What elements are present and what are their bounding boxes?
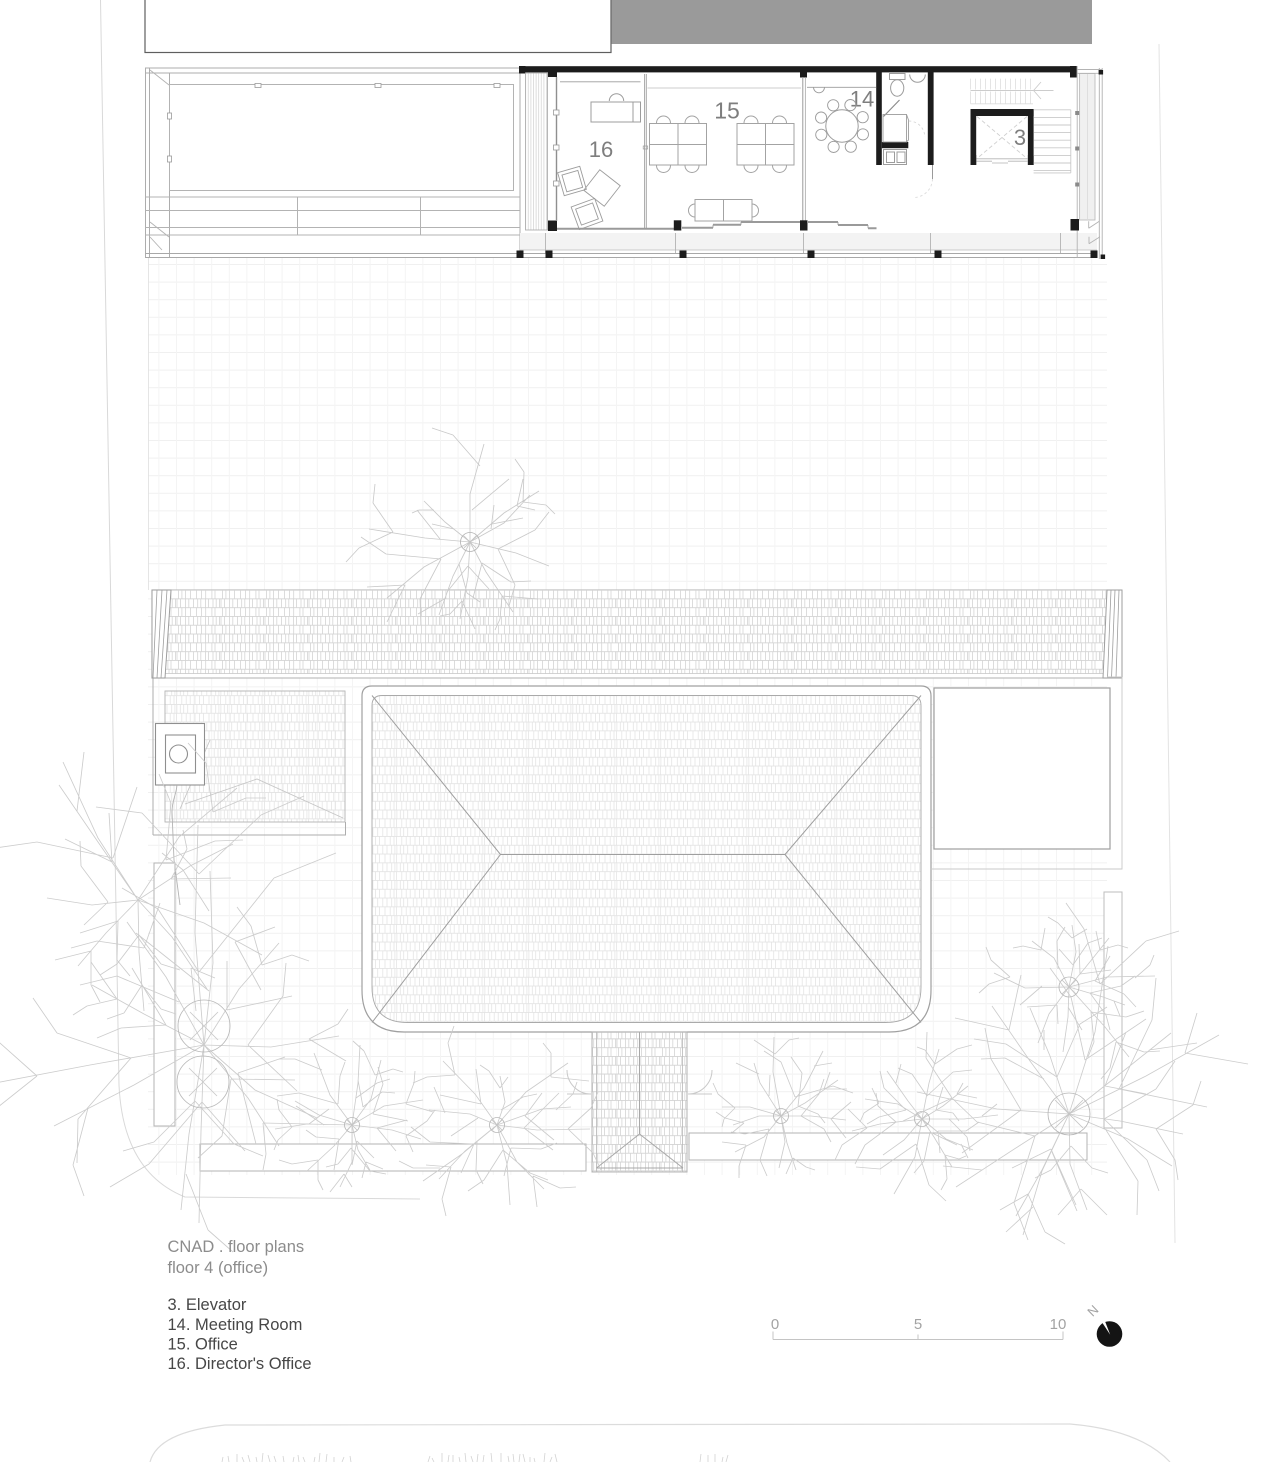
- svg-text:10: 10: [1050, 1316, 1067, 1333]
- svg-text:3. Elevator: 3. Elevator: [168, 1296, 247, 1314]
- svg-text:14. Meeting Room: 14. Meeting Room: [168, 1316, 303, 1334]
- svg-text:CNAD . floor plans: CNAD . floor plans: [168, 1238, 305, 1256]
- svg-text:0: 0: [771, 1316, 779, 1333]
- svg-text:16: 16: [589, 137, 613, 162]
- svg-text:floor 4 (office): floor 4 (office): [168, 1259, 269, 1277]
- svg-text:15. Office: 15. Office: [168, 1336, 238, 1354]
- svg-text:15: 15: [714, 98, 740, 124]
- svg-text:3: 3: [1014, 125, 1026, 150]
- svg-text:5: 5: [914, 1316, 922, 1333]
- svg-text:14: 14: [850, 87, 874, 112]
- svg-text:16. Director's Office: 16. Director's Office: [168, 1355, 312, 1373]
